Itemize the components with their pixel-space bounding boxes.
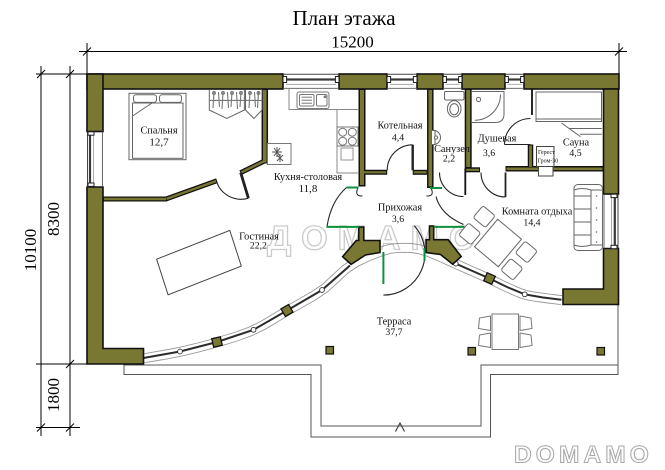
svg-text:Гром-30: Гром-30 bbox=[538, 159, 559, 165]
svg-text:Терраса: Терраса bbox=[377, 317, 412, 328]
svg-text:4,5: 4,5 bbox=[569, 148, 581, 159]
svg-text:Комната отдыха: Комната отдыха bbox=[502, 207, 573, 218]
svg-text:2,2: 2,2 bbox=[443, 154, 455, 165]
svg-text:Котельная: Котельная bbox=[377, 121, 422, 132]
svg-text:Спальня: Спальня bbox=[140, 126, 177, 137]
svg-text:4,4: 4,4 bbox=[392, 133, 404, 144]
svg-text:12,7: 12,7 bbox=[149, 137, 169, 149]
svg-text:14,4: 14,4 bbox=[523, 218, 540, 229]
svg-text:3,6: 3,6 bbox=[392, 214, 404, 225]
svg-text:37,7: 37,7 bbox=[385, 327, 402, 338]
svg-text:3,6: 3,6 bbox=[483, 148, 495, 159]
svg-text:Сауна: Сауна bbox=[563, 138, 590, 149]
svg-text:22,2: 22,2 bbox=[250, 241, 267, 252]
svg-text:Душевая: Душевая bbox=[478, 134, 517, 145]
svg-text:План этажа: План этажа bbox=[292, 6, 396, 30]
svg-text:8300: 8300 bbox=[44, 202, 63, 236]
svg-text:Кухня-столовая: Кухня-столовая bbox=[274, 172, 343, 183]
svg-text:10100: 10100 bbox=[21, 229, 40, 272]
svg-text:11,8: 11,8 bbox=[299, 183, 318, 195]
svg-text:15200: 15200 bbox=[331, 33, 374, 52]
svg-text:DOMAMO: DOMAMO bbox=[514, 442, 653, 469]
svg-text:1800: 1800 bbox=[44, 378, 63, 412]
svg-text:Прихожая: Прихожая bbox=[378, 203, 422, 214]
svg-text:Герест: Герест bbox=[538, 150, 555, 156]
